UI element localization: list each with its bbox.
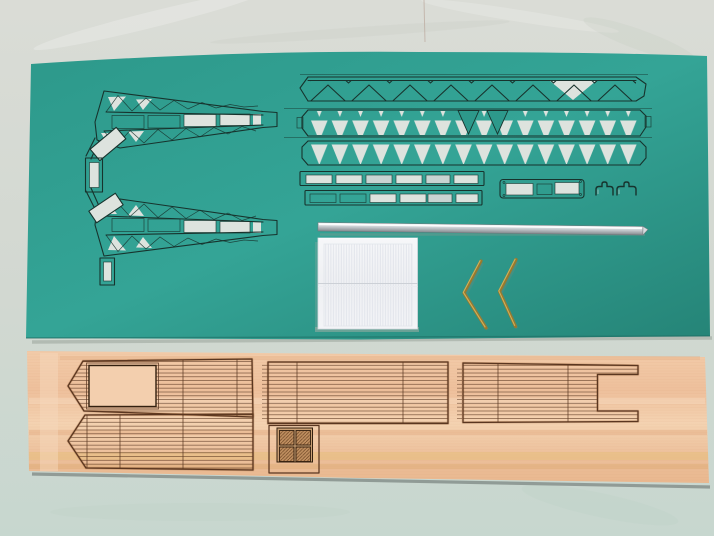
bow-deck-with-opening [66,358,256,418]
photo-canvas [0,0,714,536]
corrugated-white-panel [315,238,419,332]
mid-deck-panel [262,362,448,424]
teal-card-sheet [26,52,712,342]
photo-stage [0,0,714,536]
wood-veneer-sheet [27,351,710,487]
warren-truss-strip-upper [284,109,652,137]
bow-deck-solid [66,413,256,471]
